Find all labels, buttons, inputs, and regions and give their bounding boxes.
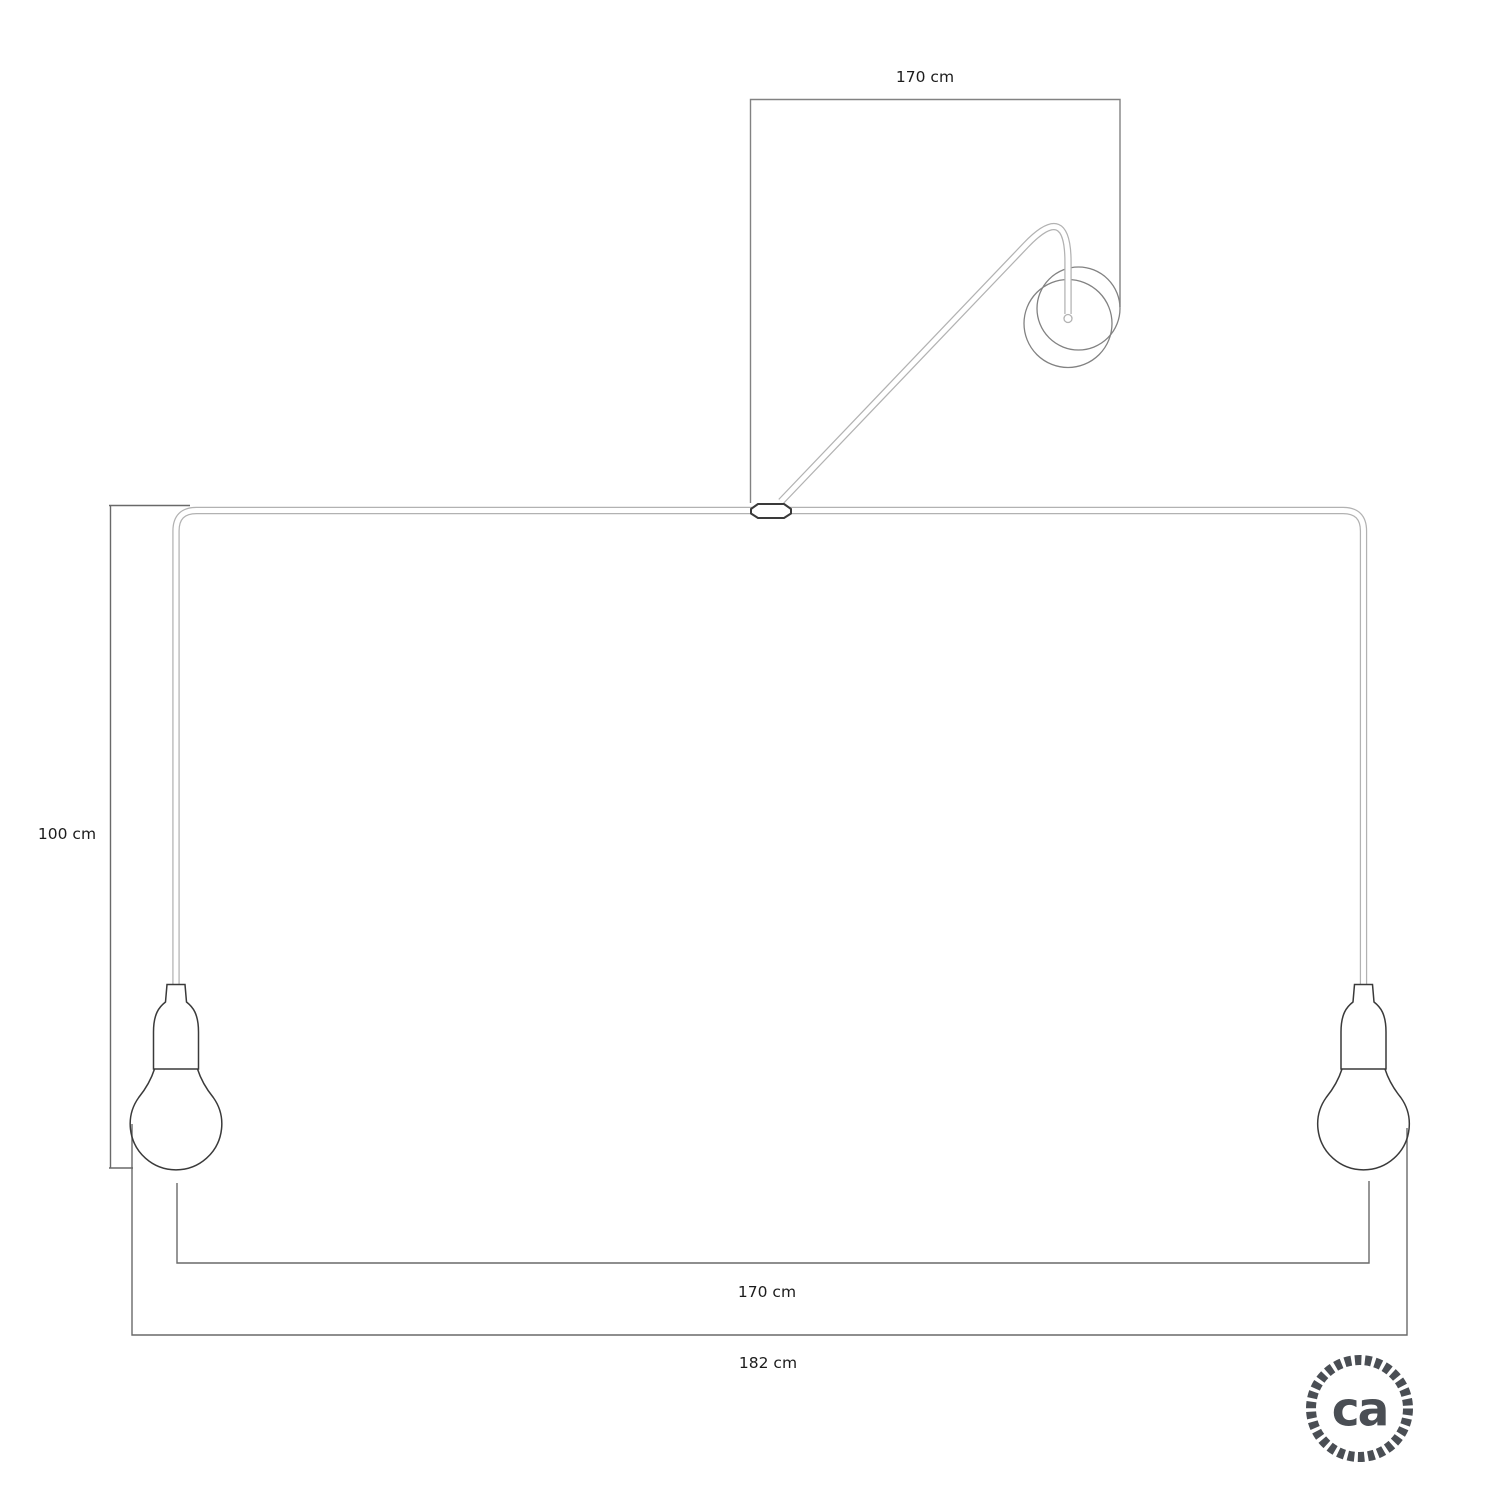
logo-text: ca xyxy=(1332,1383,1388,1438)
main-cable xyxy=(176,511,1364,987)
label-inner-span: 170 cm xyxy=(738,1283,796,1301)
label-top-cable-length: 170 cm xyxy=(896,68,954,86)
counterweight-ball-back xyxy=(1037,267,1120,350)
dim-inner-span-line xyxy=(177,1181,1369,1263)
swag-cable xyxy=(781,227,1068,502)
left-pendant xyxy=(130,985,222,1170)
dim-outer-span-line xyxy=(132,1124,1407,1335)
label-drop-height: 100 cm xyxy=(38,825,96,843)
right-pendant xyxy=(1318,985,1410,1170)
lamp-dimension-diagram: 170 cm 100 cm 170 cm 182 cm ca xyxy=(0,0,1500,1500)
label-outer-span: 182 cm xyxy=(739,1354,797,1372)
brand-logo: ca xyxy=(1311,1360,1408,1457)
ceiling-clamp xyxy=(751,504,791,518)
cable-tip xyxy=(1064,315,1072,323)
